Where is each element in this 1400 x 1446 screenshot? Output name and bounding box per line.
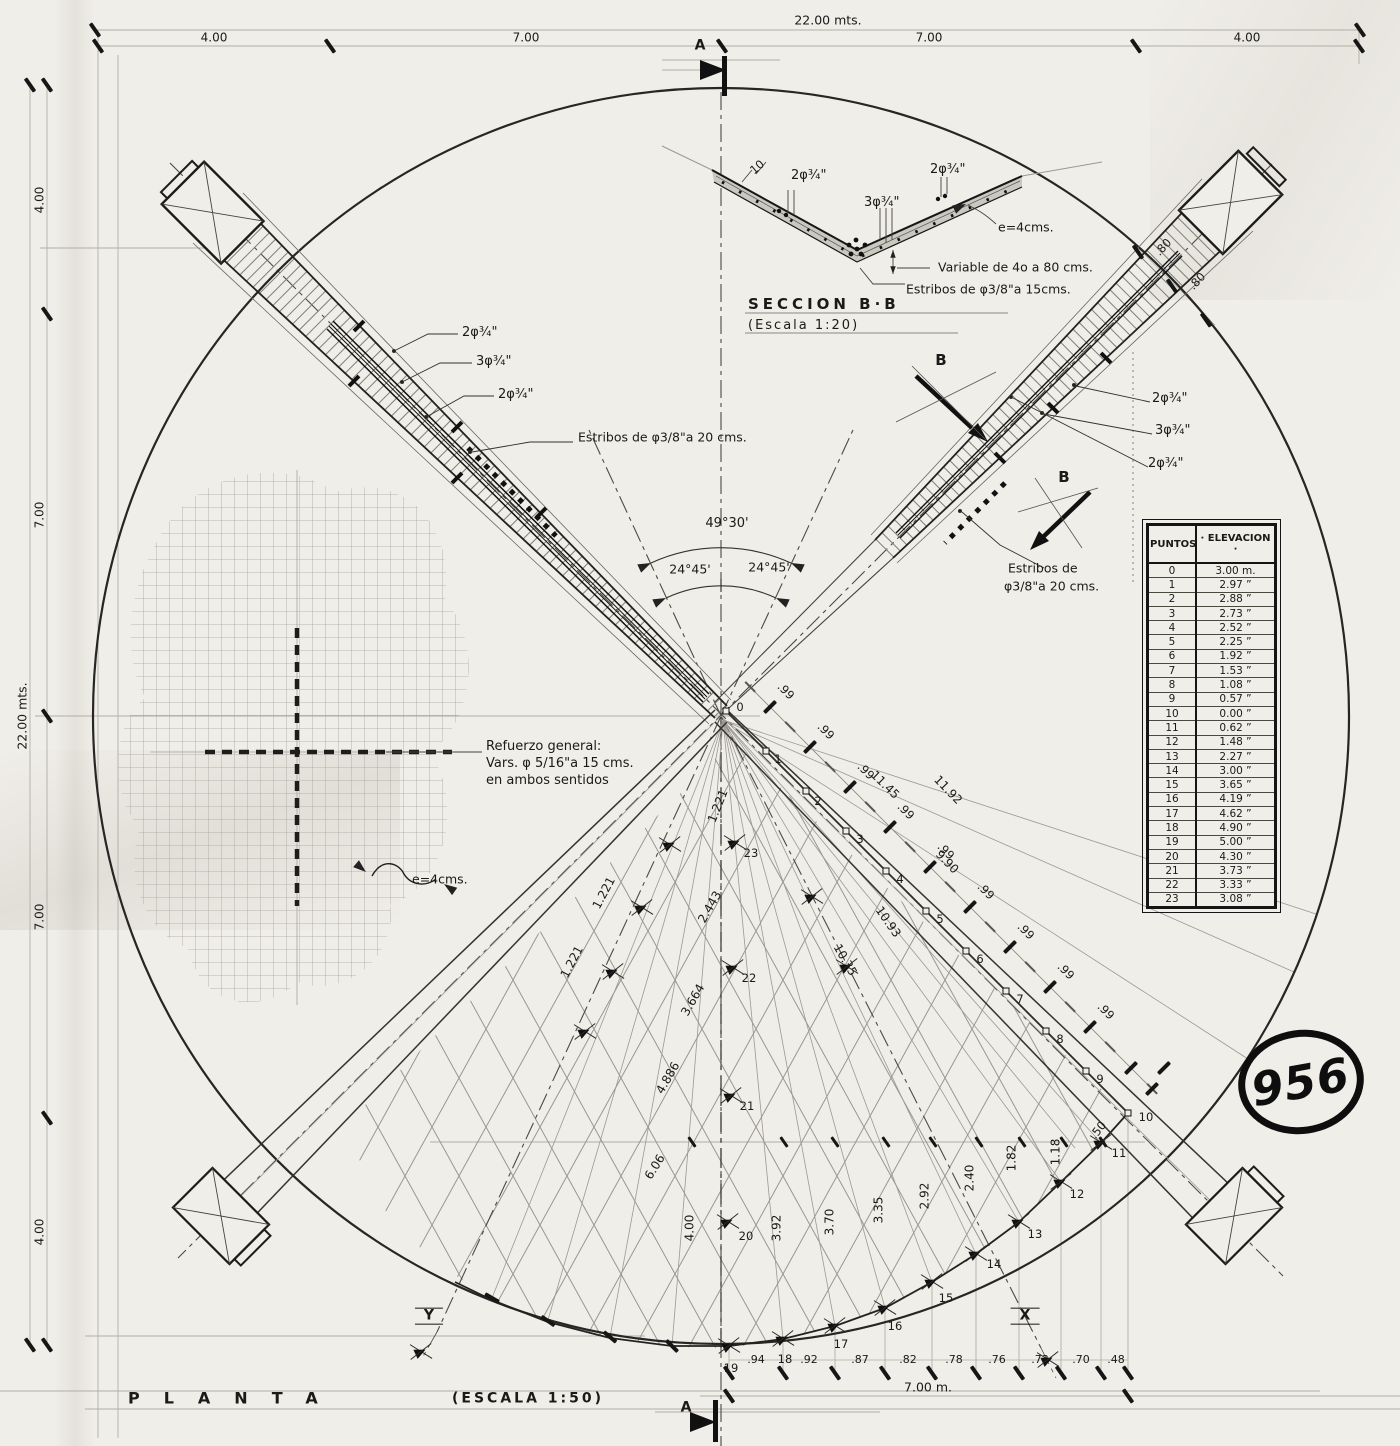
chain-division-tick [905, 842, 916, 853]
point-number: 6 [976, 953, 983, 965]
section-b-label-upper: B [935, 353, 946, 369]
dim-tick [89, 22, 101, 37]
dim-tick [829, 1365, 841, 1380]
dim-tick [926, 1365, 938, 1380]
point-number: 9 [1096, 1073, 1103, 1085]
angle-right: 24°45' [748, 560, 790, 573]
chain-tick [763, 700, 777, 714]
section-depth-note: Variable de 4o a 80 cms. [938, 260, 1093, 273]
blueprint-sheet: PUNTOS · ELEVACION · 03.00 m.12.97 ”22.8… [0, 0, 1400, 1446]
axis-cross-mark [1034, 1346, 1062, 1374]
point-number: 13 [1028, 1228, 1043, 1240]
point-number: 16 [888, 1320, 903, 1332]
chain-tick [1043, 980, 1057, 994]
point-number: 7 [1016, 993, 1023, 1005]
dim-bottom-seg: .82 [899, 1354, 917, 1366]
chain-division-tick [985, 922, 996, 933]
right-beam-stirrups-2: φ3/8"a 20 cms. [1004, 579, 1099, 592]
arc-offset-dim: 1.18 [1050, 1139, 1063, 1166]
fan-length-label: 11.92 [932, 773, 965, 806]
dim-tick [716, 38, 728, 53]
dim-tick [970, 1365, 982, 1380]
dim-left-seg: 7.00 [34, 904, 47, 931]
arc-tick [603, 1330, 618, 1343]
chain-spacing-label: .99 [775, 680, 796, 701]
axis-cross-mark [833, 953, 861, 981]
arc-tick [665, 1339, 679, 1353]
point-marker [803, 788, 810, 795]
angle-total: 49°30' [705, 517, 748, 531]
chain-tick [1083, 1020, 1097, 1034]
left-beam-bars-top: 2φ¾" [462, 326, 497, 340]
chain-division-tick [745, 682, 756, 693]
angle-left: 24°45' [669, 562, 711, 575]
arc-tick [540, 1315, 555, 1327]
dim-tick [1130, 38, 1142, 53]
axis-y-label: Y [415, 1308, 443, 1325]
dim-top-seg: 4.00 [201, 32, 228, 45]
point-number: 17 [834, 1338, 849, 1350]
dim-tick [830, 1136, 839, 1148]
point-number: 12 [1070, 1188, 1085, 1200]
axis-cross-mark [407, 1338, 435, 1366]
point-number: 5 [936, 913, 943, 925]
fan-length-label: 1.221 [706, 788, 731, 825]
section-stirrups: Estribos de φ3/8"a 15cms. [906, 282, 1071, 295]
right-beam-bars-bottom: 2φ¾" [1148, 457, 1183, 471]
beam-end-spacing: .80 [1186, 270, 1207, 292]
dim-tick [723, 1388, 735, 1403]
dim-tick [1122, 1388, 1134, 1403]
chain-spacing-label: .99 [1055, 960, 1076, 981]
section-b-label-lower: B [1058, 470, 1069, 486]
point-marker [1083, 1068, 1090, 1075]
section-title: SECCION B·B [748, 297, 900, 313]
point-marker [769, 1325, 797, 1353]
dim-tick [41, 1337, 53, 1352]
fan-length-label: 10.93 [873, 904, 903, 939]
fan-length-label: 11.45 [868, 769, 901, 802]
dim-bottom-seg: .70 [1072, 1354, 1090, 1366]
left-beam-bars-bottom: 2φ¾" [498, 388, 533, 402]
fan-length-label: 3.664 [679, 982, 707, 1018]
axis-x-label: X [1011, 1308, 1040, 1325]
dim-tick [1132, 244, 1144, 259]
arc-offset-dim: 1.82 [1006, 1145, 1019, 1172]
dim-tick [1200, 312, 1212, 327]
annotation-layer: 22.00 mts. 4.00 7.00 7.00 4.00 22.00 mts… [0, 0, 1400, 1446]
chain-spacing-label: .99 [895, 800, 916, 821]
chain-tick [1003, 940, 1017, 954]
point-marker [1043, 1028, 1050, 1035]
plan-title: PLANTA [128, 1391, 342, 1408]
section-bars-top-left: 2φ¾" [791, 169, 826, 183]
dim-left-total: 22.00 mts. [15, 682, 28, 749]
point-number: 2 [814, 795, 821, 807]
dim-tick [1354, 22, 1366, 37]
point-number: 20 [739, 1230, 754, 1242]
axis-cross-mark [628, 894, 656, 922]
point-number: 14 [987, 1258, 1002, 1270]
right-beam-bars-mid: 3φ¾" [1155, 424, 1190, 438]
point-marker [763, 748, 770, 755]
dim-bottom-seg: .78 [945, 1354, 963, 1366]
dim-tick [779, 1136, 788, 1148]
dim-tick [1017, 1136, 1026, 1148]
section-bars-bottom: 3φ¾" [864, 196, 899, 210]
point-marker [715, 1332, 743, 1360]
chain-tick [923, 860, 937, 874]
section-shell-thickness: e=4cms. [998, 220, 1054, 233]
dim-tick [324, 38, 336, 53]
point-marker [843, 828, 850, 835]
right-beam-stirrups-1: Estribos de [1008, 561, 1078, 574]
dim-tick [974, 1136, 983, 1148]
dim-tick [1013, 1365, 1025, 1380]
mesh-note-3: en ambos sentidos [486, 774, 609, 788]
arc-tick [484, 1292, 500, 1303]
chain-division-tick [785, 722, 796, 733]
dim-tick [24, 77, 36, 92]
dim-tick [41, 77, 53, 92]
chain-division-tick [825, 762, 836, 773]
fan-length-label: 1.221 [558, 944, 585, 980]
dim-left-seg: 7.00 [34, 502, 47, 529]
dim-tick [41, 306, 53, 321]
dim-bottom-seg: .76 [988, 1354, 1006, 1366]
dim-tick [1095, 1365, 1107, 1380]
dim-tick [92, 38, 104, 53]
point-marker [821, 1312, 849, 1340]
point-marker [871, 1294, 899, 1322]
chain-division-tick [1065, 1002, 1076, 1013]
dim-tick [41, 708, 53, 723]
chain-spacing-label: .99 [815, 720, 836, 741]
point-number: 15 [939, 1292, 954, 1304]
axis-cross-mark [798, 883, 826, 911]
dim-tick [687, 1136, 696, 1148]
dim-tick [1166, 278, 1178, 293]
chain-division-tick [1025, 962, 1036, 973]
point-number: 23 [744, 847, 759, 859]
point-number: 18 [778, 1353, 793, 1365]
point-number: 11 [1112, 1147, 1127, 1159]
arc-offset-dim: 2.40 [964, 1165, 977, 1192]
chain-spacing-label: .99 [1015, 920, 1036, 941]
point-number: 3 [856, 833, 863, 845]
mesh-note-1: Refuerzo general: [486, 740, 601, 754]
section-a-label-bottom: A [681, 1401, 692, 1416]
dim-left-seg: 4.00 [34, 1219, 47, 1246]
axis-cross-mark [656, 831, 684, 859]
dim-bottom-seg: .87 [851, 1354, 869, 1366]
dim-tick [1122, 1365, 1134, 1380]
fan-length-label: 4.886 [654, 1060, 682, 1096]
dim-tick [24, 1337, 36, 1352]
dim-left-seg: 4.00 [34, 187, 47, 214]
section-a-label-top: A [695, 39, 706, 54]
point-number: 0 [736, 701, 743, 713]
point-marker [963, 948, 970, 955]
dim-tick [777, 1365, 789, 1380]
fan-length-label: 2.443 [696, 889, 724, 925]
axis-cross-mark [599, 958, 627, 986]
point-marker [1125, 1110, 1132, 1117]
dim-tick [881, 1136, 890, 1148]
point-number: 22 [742, 972, 757, 984]
chain-spacing-label: .99 [1095, 1000, 1116, 1021]
beam-end-spacing: .80 [1152, 236, 1173, 258]
dim-tick [928, 1136, 937, 1148]
chain-tick [843, 780, 857, 794]
chain-division-tick [1105, 1042, 1116, 1053]
arc-offset-dim: 3.70 [824, 1209, 837, 1236]
chain-tick [803, 740, 817, 754]
dim-tick [879, 1365, 891, 1380]
dim-top-seg: 7.00 [513, 32, 540, 45]
fan-length-label: 1.221 [590, 875, 617, 911]
dim-bottom-seg: .92 [800, 1354, 818, 1366]
chain-tick [963, 900, 977, 914]
point-marker [723, 708, 730, 715]
point-number: 4 [896, 873, 903, 885]
arc-offset-dim: 3.35 [873, 1197, 886, 1224]
chain-division-tick [945, 882, 956, 893]
section-scale: (Escala 1:20) [748, 319, 859, 333]
dim-bottom-seg: .48 [1107, 1354, 1125, 1366]
arc-offset-dim: 3.92 [771, 1215, 784, 1242]
chain-tick [883, 820, 897, 834]
plan-scale: (ESCALA 1:50) [452, 1392, 604, 1407]
dim-tick [41, 1110, 53, 1125]
chain-division-tick [865, 802, 876, 813]
point-number: 8 [1056, 1033, 1063, 1045]
axis-cross-mark [571, 1018, 599, 1046]
chain-tick [1124, 1061, 1138, 1075]
point-number: 21 [740, 1100, 755, 1112]
right-beam-bars-top: 2φ¾" [1152, 392, 1187, 406]
dim-tick [1353, 38, 1365, 53]
point-marker [883, 868, 890, 875]
dim-top-seg: 4.00 [1234, 32, 1261, 45]
section-dim-10: 10 [748, 158, 767, 177]
arc-offset-dim: 4.00 [684, 1215, 697, 1242]
point-marker [1003, 988, 1010, 995]
mesh-thickness: e=4cms. [412, 872, 468, 885]
mesh-note-2: Vars. φ 5/16"a 15 cms. [486, 757, 634, 771]
point-marker [923, 908, 930, 915]
left-beam-stirrups: Estribos de φ3/8"a 20 cms. [578, 430, 747, 443]
left-beam-bars-mid: 3φ¾" [476, 355, 511, 369]
point-number: 10 [1139, 1111, 1154, 1123]
dim-top-total: 22.00 mts. [794, 13, 861, 26]
arc-tick [1157, 1061, 1171, 1075]
dim-bottom-seg: .94 [747, 1354, 765, 1366]
section-bars-top-right: 2φ¾" [930, 163, 965, 177]
dim-top-seg: 7.00 [916, 32, 943, 45]
chain-spacing-label: .99 [975, 880, 996, 901]
arc-offset-dim: 2.92 [919, 1183, 932, 1210]
dim-bottom-total: 7.00 m. [904, 1380, 952, 1393]
point-number: 1 [774, 753, 781, 765]
fan-length-label: 6.06 [643, 1152, 668, 1181]
